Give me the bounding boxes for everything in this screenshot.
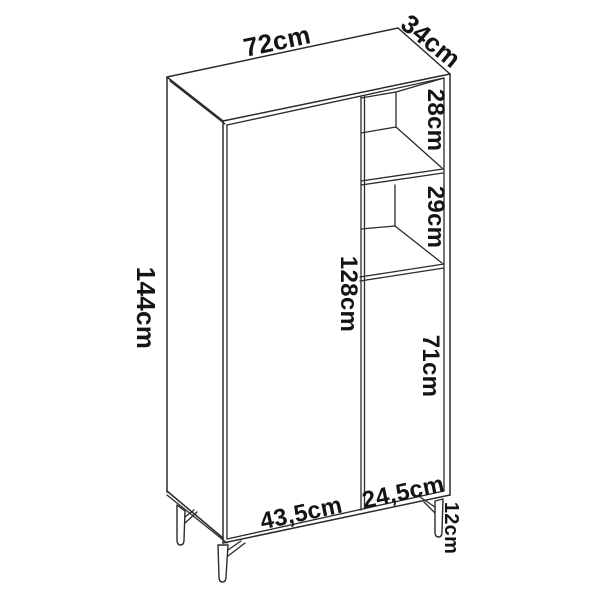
front-left-leg	[218, 545, 228, 582]
top-front-edge-outer	[223, 74, 450, 121]
top-front-edge-inner	[227, 78, 444, 125]
top-left-depth-edge-outer	[167, 77, 223, 121]
left-door-height-label: 128cm	[335, 256, 362, 332]
top-depth-label: 34cm	[395, 8, 466, 74]
diagram-canvas: 72cm 34cm 144cm 28cm 29cm 128cm 71cm 43,…	[0, 0, 600, 600]
top-width-label: 72cm	[241, 19, 313, 62]
right-door-height-label: 71cm	[417, 335, 444, 398]
middle-shelf-height-label: 29cm	[422, 186, 449, 249]
upper-shelf-height-label: 28cm	[422, 89, 449, 152]
leg-height-label: 12cm	[440, 502, 462, 554]
left-door-width-label: 43,5cm	[258, 492, 345, 536]
right-door-width-label: 24,5cm	[360, 471, 447, 515]
shelf2-back-edge	[361, 226, 395, 229]
shelf1-back-edge	[361, 127, 396, 133]
front-left-leg-brace-bottom	[228, 543, 245, 556]
back-left-leg	[177, 505, 185, 545]
furniture-dimension-diagram: 72cm 34cm 144cm 28cm 29cm 128cm 71cm 43,…	[0, 0, 600, 600]
top-left-depth-edge-inner	[170, 81, 225, 124]
cabinet-outline	[167, 28, 450, 543]
side-bottom-edge-inner	[167, 495, 227, 543]
total-height-label: 144cm	[131, 267, 161, 349]
front-left-leg-brace-top	[228, 541, 241, 550]
